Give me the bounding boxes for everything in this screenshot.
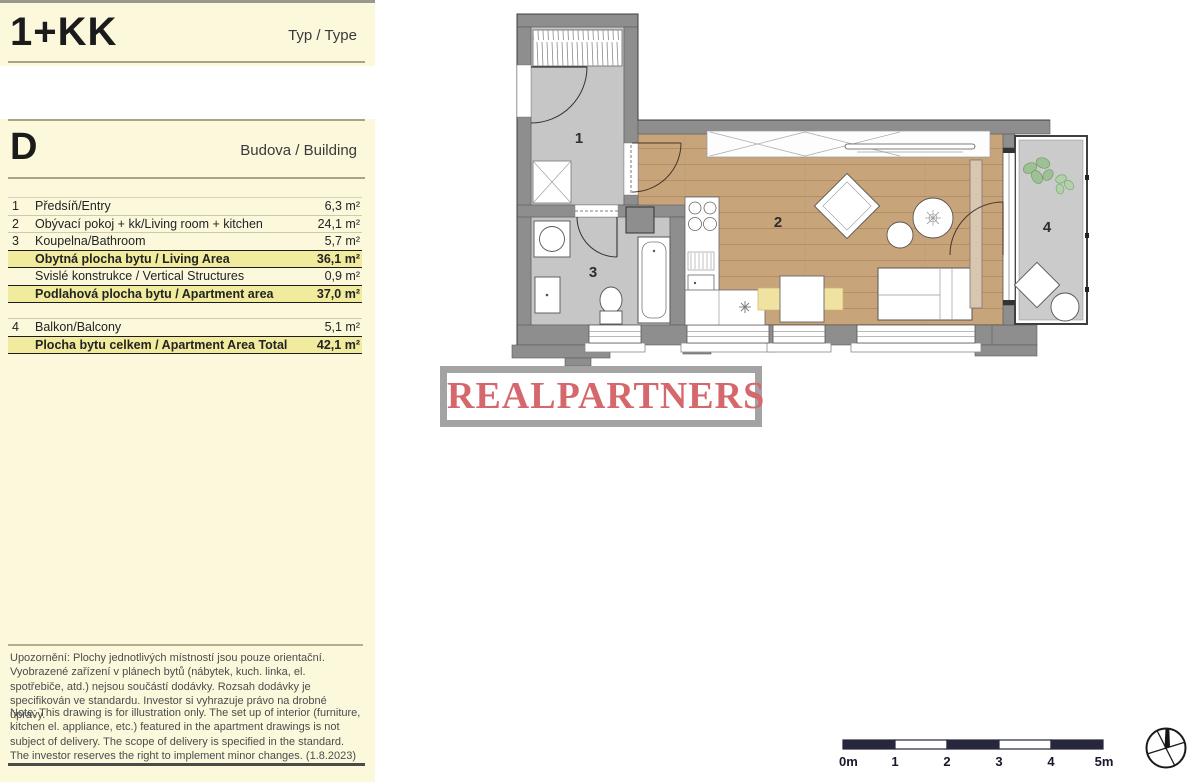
room-area: 5,1 m² [325,320,362,334]
panel-bottom-rule [8,763,365,766]
balcony-window-band [1003,148,1015,305]
scale-segment [843,740,895,749]
white-band [0,66,375,119]
scale-bar: 0m 1 2 3 4 5m [838,735,1128,777]
window [857,325,975,343]
bathroom-wall [670,217,685,325]
total-name: Plocha bytu celkem / Apartment Area Tota… [35,338,317,352]
wall [1003,134,1015,148]
room-area: 24,1 m² [318,217,362,231]
total-area: 37,0 m² [317,287,362,301]
wall-step [975,345,1037,356]
toilet-tank [600,311,622,324]
realpartners-logo-text: REALPARTNERS [447,375,765,417]
wardrobe-hatch [533,30,622,66]
room-name: Obývací pokoj + kk/Living room + kitchen [35,217,318,231]
sink-drain [694,282,696,284]
tv [845,144,975,149]
railing-post [1085,287,1089,292]
desk [780,276,824,322]
scale-label: 3 [995,754,1002,769]
wall-step [565,358,591,366]
building-code: D [10,128,38,166]
window [687,325,769,343]
scale-label: 2 [943,754,950,769]
railing-post [1085,175,1089,180]
room-name: Svislé konstrukce / Vertical Structures [35,269,325,283]
table-row-total: Podlahová plocha bytu / Apartment area 3… [8,285,362,304]
table-row: 1 Předsíň/Entry 6,3 m² [8,197,362,215]
realpartners-logo: REALPARTNERS [440,366,762,427]
scale-label: 1 [891,754,898,769]
room-area: 5,7 m² [325,234,362,248]
entry-door-opening [517,65,531,117]
scale-segment [999,740,1051,749]
room-label-balcony: 4 [1043,219,1052,236]
kitchen-sink [688,275,714,291]
table-row: 3 Koupelna/Bathroom 5,7 m² [8,232,362,250]
room-number: 4 [8,320,35,334]
stove-burner [689,218,702,231]
divider [8,119,365,121]
table-row: 4 Balkon/Balcony 5,1 m² [8,318,362,336]
kitchen-lower-counter [685,290,765,325]
divider [8,177,365,179]
dish-rack [688,252,714,270]
wall [517,27,531,65]
north-arrow-icon [1141,721,1193,773]
room-number: 1 [8,199,35,213]
table-row-total: Plocha bytu celkem / Apartment Area Tota… [8,336,362,355]
scale-segment [1051,740,1103,749]
installation-shaft [626,207,654,233]
total-area: 36,1 m² [317,252,362,266]
wall [992,325,1037,345]
apartment-type-code: 1+KK [10,12,117,52]
window-sill [851,343,981,352]
compass-needle [1165,729,1171,749]
wall [624,27,638,143]
window-sill [767,343,831,352]
room-label-living: 2 [774,214,782,231]
wall [1003,305,1015,325]
room-label-bathroom: 3 [589,264,597,281]
stove-burner [704,202,716,214]
stove-burner [689,202,701,214]
area-table: 1 Předsíň/Entry 6,3 m² 2 Obývací pokoj +… [8,197,362,354]
table-row: Svislé konstrukce / Vertical Structures … [8,268,362,285]
table-gap [8,303,362,318]
floorplan-drawing: 1 2 3 4 [505,5,1105,375]
divider [8,644,363,646]
wall [517,117,531,345]
table-row: 2 Obývací pokoj + kk/Living room + kitch… [8,215,362,233]
total-name: Podlahová plocha bytu / Apartment area [35,287,317,301]
room-number: 3 [8,234,35,248]
window [773,325,825,343]
balcony-table [1051,293,1079,321]
table-plant-icon [925,210,941,226]
building-section-label: Budova / Building [240,142,357,159]
room-area: 6,3 m² [325,199,362,213]
wall [517,14,638,27]
window-jamb [1003,148,1015,153]
scale-label: 0m [839,754,858,769]
type-section-label: Typ / Type [288,27,357,44]
divider [8,61,365,63]
room-number: 2 [8,217,35,231]
info-panel: 1+KK Typ / Type D Budova / Building 1 Př… [0,0,375,782]
room-area: 0,9 m² [325,269,362,283]
room-label-entry: 1 [575,130,583,147]
window-jamb [1003,300,1015,305]
panel-top-rule [0,0,375,3]
window [589,325,641,343]
scale-label: 5m [1095,754,1114,769]
toilet-bowl [600,287,622,313]
scale-segment [947,740,999,749]
side-table [887,222,913,248]
total-area: 42,1 m² [317,338,362,352]
window-sill [681,343,775,352]
sink-drain [546,294,549,297]
stove-burner [704,218,717,231]
bed [878,268,972,320]
scale-segment [895,740,947,749]
room-name: Předsíň/Entry [35,199,325,213]
room-name: Balkon/Balcony [35,320,325,334]
table-row-total: Obytná plocha bytu / Living Area 36,1 m² [8,250,362,269]
tall-wardrobe [970,160,982,308]
total-name: Obytná plocha bytu / Living Area [35,252,317,266]
bathtub-drain [653,250,655,252]
scale-label: 4 [1047,754,1055,769]
window-sill [585,343,645,352]
disclaimer-english: Note: This drawing is for illustration o… [10,706,362,763]
room-name: Koupelna/Bathroom [35,234,325,248]
railing-post [1085,233,1089,238]
